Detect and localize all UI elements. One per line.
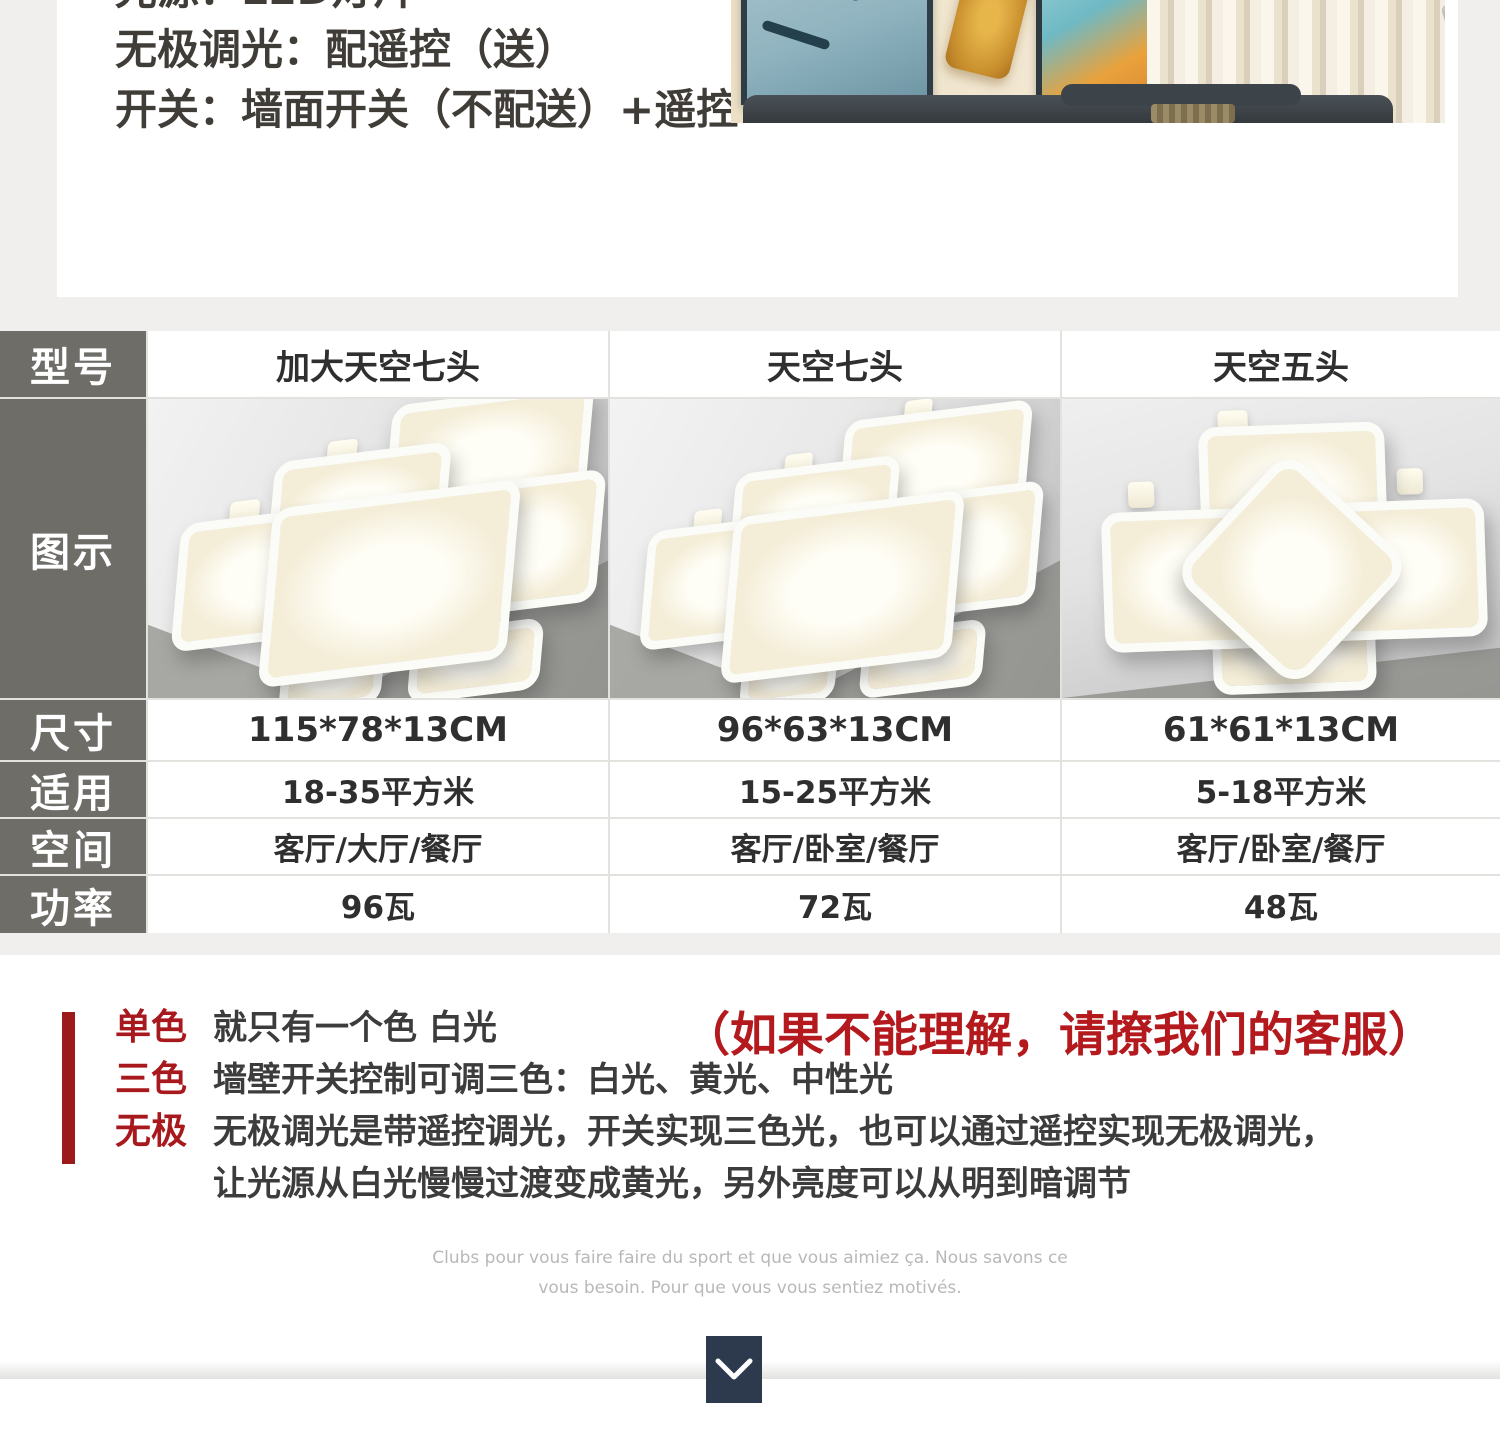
spec-line-dimming: 无极调光：配遥控（送） (115, 20, 738, 80)
comparison-table: 型号 加大天空七头 天空七头 天空五头 图示 (0, 331, 1500, 933)
model-rooms-1: 客厅/大厅/餐厅 (148, 819, 608, 874)
footer-french-text: Clubs pour vous faire faire du sport et … (0, 1243, 1500, 1303)
model-area-2: 15-25平方米 (610, 762, 1060, 817)
ceiling-lamp-photo-5-head (1062, 399, 1500, 698)
lamp-mount-cube (1396, 468, 1423, 495)
model-rooms-2: 客厅/卧室/餐厅 (610, 819, 1060, 874)
ceiling-lamp-photo-7-head (610, 399, 1060, 698)
row-header-power: 功率 (0, 876, 146, 933)
sofa-pillow (1061, 84, 1301, 106)
expand-more-button[interactable] (706, 1336, 762, 1403)
model-area-3: 5-18平方米 (1062, 762, 1500, 817)
model-power-2: 72瓦 (610, 876, 1060, 933)
model-size-1: 115*78*13CM (148, 700, 608, 760)
note-text: 让光源从白光慢慢过渡变成黄光，另外亮度可以从明到暗调节 (213, 1164, 1131, 1204)
note-text: 就只有一个色 白光 (213, 1008, 497, 1048)
note-text: 无极调光是带遥控调光，开关实现三色光，也可以通过遥控实现无极调光， (213, 1112, 1335, 1152)
ceiling-lamp-7-head (634, 400, 1026, 698)
footer-french-line-1: Clubs pour vous faire faire du sport et … (0, 1243, 1500, 1273)
spec-line-switch: 开关：墙面开关（不配送）+遥控 (115, 80, 738, 140)
lamp-mount-cube (1128, 481, 1155, 508)
model-rooms-3: 客厅/卧室/餐厅 (1062, 819, 1500, 874)
lamp-panel (258, 479, 522, 689)
spec-line-light-source: 光源：LED灯片 (115, 0, 738, 20)
note-label: 无极 (115, 1112, 195, 1152)
product-detail-page: 光源：LED灯片 无极调光：配遥控（送） 开关：墙面开关（不配送）+遥控 型号 … (0, 0, 1500, 1446)
row-header-size: 尺寸 (0, 700, 146, 760)
model-image-cell-1 (148, 399, 608, 698)
row-header-image: 图示 (0, 399, 146, 698)
gold-wall-decor (943, 0, 1035, 81)
note-line-stepless-continued: 让光源从白光慢慢过渡变成黄光，另外亮度可以从明到暗调节 (115, 1164, 1335, 1204)
footer-french-line-2: vous besoin. Pour que vous vous sentiez … (0, 1273, 1500, 1303)
spec-lines: 光源：LED灯片 无极调光：配遥控（送） 开关：墙面开关（不配送）+遥控 (115, 0, 738, 140)
red-accent-bar (62, 1012, 75, 1164)
model-name-3: 天空五头 (1062, 331, 1500, 397)
ceiling-lamp-7-head (165, 399, 587, 698)
ceiling-lamp-photo-large-7-head (148, 399, 608, 698)
ceiling-lamp-5-head (1089, 401, 1468, 692)
model-image-cell-3 (1062, 399, 1500, 698)
model-size-2: 96*63*13CM (610, 700, 1060, 760)
note-text: 墙壁开关控制可调三色：白光、黄光、中性光 (213, 1060, 893, 1100)
model-area-1: 18-35平方米 (148, 762, 608, 817)
chevron-down-icon (714, 1358, 754, 1382)
note-line-tri-color: 三色 墙壁开关控制可调三色：白光、黄光、中性光 (115, 1060, 1335, 1100)
bedroom-photo (731, 0, 1445, 123)
row-header-area: 适用 (0, 762, 146, 817)
note-label: 单色 (115, 1008, 195, 1048)
model-name-2: 天空七头 (610, 331, 1060, 397)
model-size-3: 61*61*13CM (1062, 700, 1500, 760)
note-label: 三色 (115, 1060, 195, 1100)
spec-section: 光源：LED灯片 无极调光：配遥控（送） 开关：墙面开关（不配送）+遥控 (57, 0, 1458, 297)
wall-painting-left (741, 0, 933, 105)
model-image-cell-2 (610, 399, 1060, 698)
bench (1151, 104, 1235, 123)
row-header-rooms: 空间 (0, 819, 146, 874)
model-power-1: 96瓦 (148, 876, 608, 933)
lamp-panel (720, 490, 965, 685)
customer-service-headline: （如果不能理解，请撩我们的客服） (683, 996, 1435, 1065)
model-power-3: 48瓦 (1062, 876, 1500, 933)
note-line-stepless: 无极 无极调光是带遥控调光，开关实现三色光，也可以通过遥控实现无极调光， (115, 1112, 1335, 1152)
row-header-model: 型号 (0, 331, 146, 397)
model-name-1: 加大天空七头 (148, 331, 608, 397)
